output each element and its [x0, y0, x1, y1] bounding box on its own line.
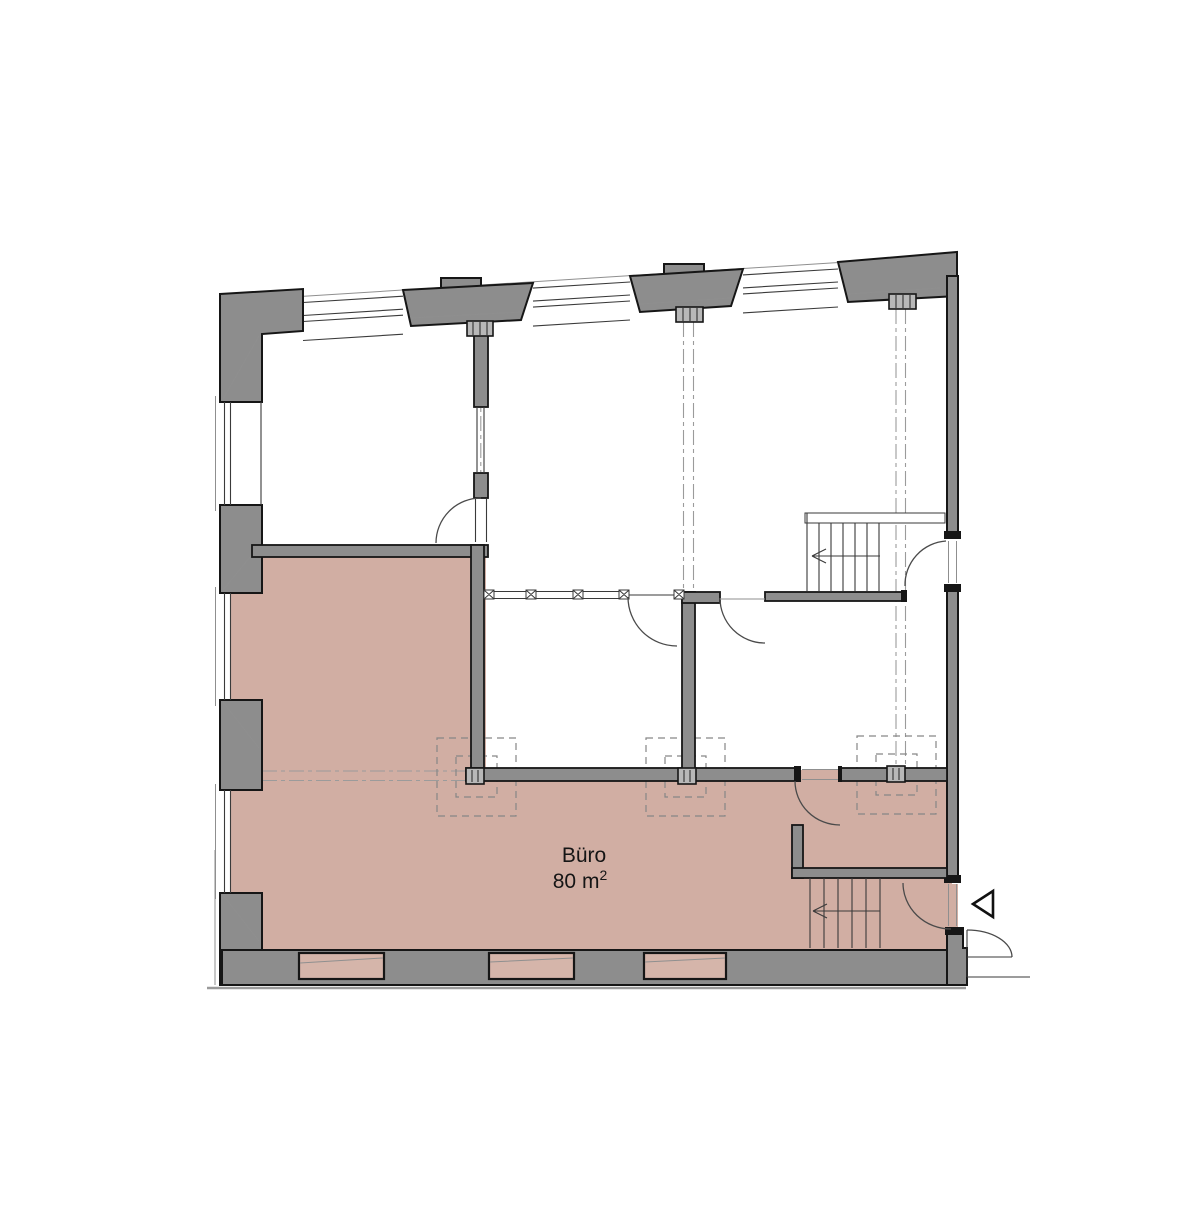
facade-column-cap-1	[467, 321, 493, 336]
room-name-text: Büro	[562, 844, 606, 867]
arrow-left-icon	[812, 549, 880, 563]
facade-column-cap-3	[889, 294, 916, 309]
facade-pilaster-3	[630, 264, 743, 312]
stairs-upper	[805, 513, 945, 591]
door-stair-landing-swing-arc	[905, 541, 946, 586]
structural-column-2	[678, 768, 696, 784]
left-window-reveal-1	[231, 593, 262, 700]
left-window-2-glazing	[225, 593, 231, 700]
window-band-segment-2	[533, 282, 630, 326]
left-window-sills	[215, 396, 216, 985]
pilaster-3-body	[630, 269, 743, 312]
column-box	[887, 766, 905, 782]
facade-pilaster-2	[403, 278, 533, 326]
door-exterior-frame-lines	[967, 957, 1030, 977]
upper-partition-solid-wall	[474, 329, 488, 407]
room-area-text: 80 m2	[553, 867, 608, 893]
right-wall-upper	[947, 276, 958, 536]
column-axis-3-centerlines	[896, 309, 906, 766]
upper-stair-direction-arrow	[812, 549, 880, 563]
bottom-window-niche-1	[299, 953, 384, 979]
door-room-b-swing-arc	[720, 598, 765, 643]
door-exterior-swing-arc	[967, 930, 1012, 957]
glazed-partitions	[477, 407, 684, 599]
glazed-partition-horizontal	[487, 592, 628, 599]
structural-column-1	[466, 768, 484, 784]
door-exterior-entrance	[967, 930, 1030, 977]
entrance-marker	[973, 891, 993, 917]
facade-column-cap-2	[676, 307, 703, 322]
right-wall-bottom-corner	[947, 932, 967, 985]
upper-partition-door-post	[474, 473, 488, 498]
window-band-segment-1	[303, 296, 403, 340]
floor-plan-page: Büro 80 m2	[0, 0, 1200, 1200]
hall-wall-stub	[682, 592, 720, 603]
door-room-a-swing-arc	[628, 597, 677, 646]
stair-enclosure-wall-horizontal	[792, 868, 947, 878]
window-band-segment-3	[743, 269, 838, 313]
column-box	[466, 768, 484, 784]
bottom-window-niche-3	[644, 953, 726, 979]
bottom-wall-windows	[299, 953, 726, 979]
door-upper-left-swing-arc	[436, 498, 481, 543]
buero-floor-polygon	[252, 548, 952, 952]
upper-stair-landing-edge	[805, 513, 945, 523]
hall-wall-end-cap	[901, 590, 907, 602]
buero-top-wall	[252, 545, 488, 557]
door-right-wall-upper-reveals	[949, 541, 957, 583]
door-upper-left-jambs	[476, 499, 487, 542]
right-wall-middle	[947, 586, 958, 878]
triangle-left-icon	[973, 891, 993, 917]
structural-column-3	[887, 766, 905, 782]
rooms-divider-wall-left	[466, 768, 800, 781]
corner-pilaster-top-left	[220, 289, 303, 402]
upper-stair-treads	[807, 513, 879, 591]
bottom-window-niche-2	[489, 953, 574, 979]
left-window-reveal-2	[231, 790, 262, 893]
room-partition-vertical-wall	[682, 592, 695, 770]
column-box	[678, 768, 696, 784]
right-wall-jamb-cap-1	[944, 531, 961, 539]
left-window-1-glazing	[225, 402, 262, 505]
divider-door-jamb-cap-left	[794, 766, 801, 782]
right-wall-jamb-cap-4	[945, 927, 964, 935]
floor-plan-canvas: Büro 80 m2	[0, 0, 1200, 1200]
pilaster-2-body	[403, 283, 533, 326]
buero-vertical-wall	[471, 545, 484, 777]
divider-door-jamb-cap-right	[838, 766, 842, 782]
right-wall-jamb-cap-2	[944, 584, 961, 592]
hall-wall-right	[765, 592, 905, 601]
left-wall-pilaster-3	[220, 700, 262, 790]
left-window-3-glazing	[225, 790, 231, 893]
